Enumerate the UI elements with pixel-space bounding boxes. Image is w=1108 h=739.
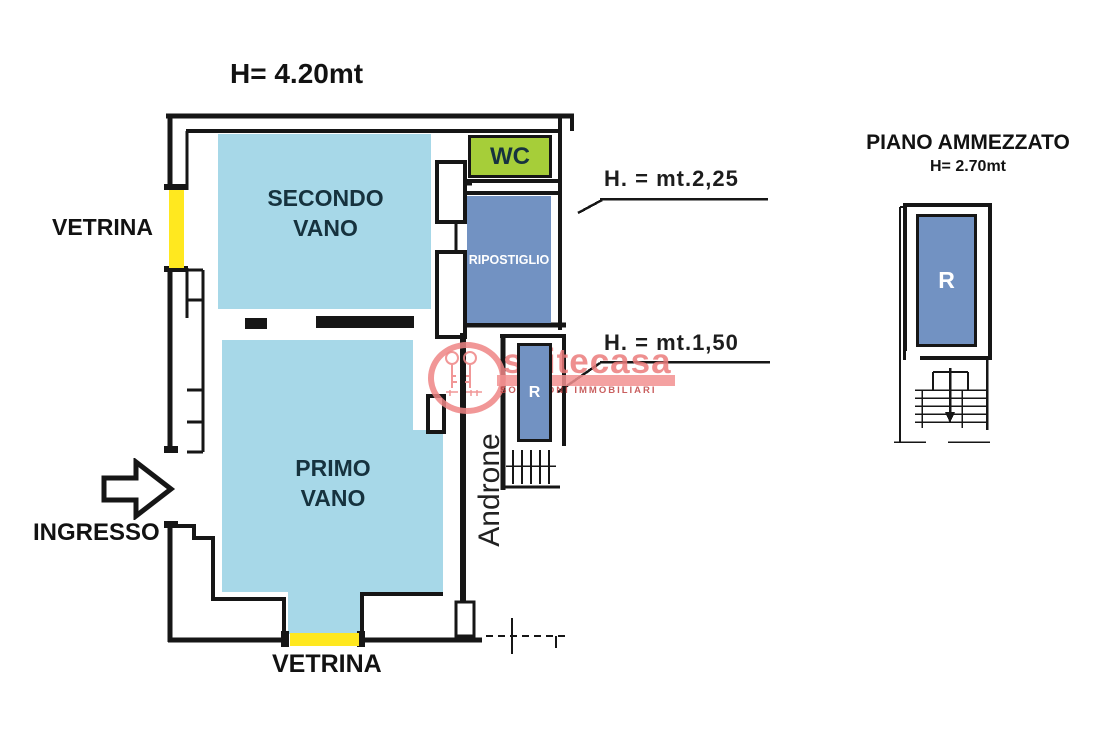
wc-box: WC bbox=[468, 135, 552, 178]
vetrina-left-strip bbox=[169, 190, 184, 268]
floorplan-page: WC RIPOSTIGLIO R suitecasa SOLUZIONI IMM… bbox=[0, 0, 1108, 739]
vetrina-bottom-label: VETRINA bbox=[272, 650, 382, 679]
ripostiglio-box: RIPOSTIGLIO bbox=[467, 196, 551, 323]
ingresso-arrow-icon bbox=[100, 458, 176, 520]
vetrina-bottom-strip bbox=[290, 633, 359, 646]
r-box-main: R bbox=[517, 343, 552, 442]
r-label-mezzanine: R bbox=[938, 267, 955, 294]
mezzanine-height-label: H= 2.70mt bbox=[858, 158, 1078, 176]
ripostiglio-label: RIPOSTIGLIO bbox=[469, 253, 550, 267]
ceiling-height-label: H= 4.20mt bbox=[230, 58, 363, 90]
ingresso-label: INGRESSO bbox=[33, 519, 160, 547]
secondo-vano-label: SECONDO VANO bbox=[238, 178, 413, 248]
r-box-mezzanine: R bbox=[916, 214, 977, 347]
watermark-keys-icon bbox=[438, 350, 490, 400]
height-annotation-lower: H. = mt.1,50 bbox=[604, 330, 739, 356]
vetrina-left-label: VETRINA bbox=[52, 214, 153, 241]
height-annotation-upper: H. = mt.2,25 bbox=[604, 166, 739, 192]
androne-label: Androne bbox=[473, 405, 513, 575]
wc-label: WC bbox=[490, 143, 530, 171]
mezzanine-title: PIANO AMMEZZATO bbox=[858, 131, 1078, 155]
primo-vano-label: PRIMO VANO bbox=[253, 448, 413, 518]
r-label-main: R bbox=[529, 384, 541, 402]
